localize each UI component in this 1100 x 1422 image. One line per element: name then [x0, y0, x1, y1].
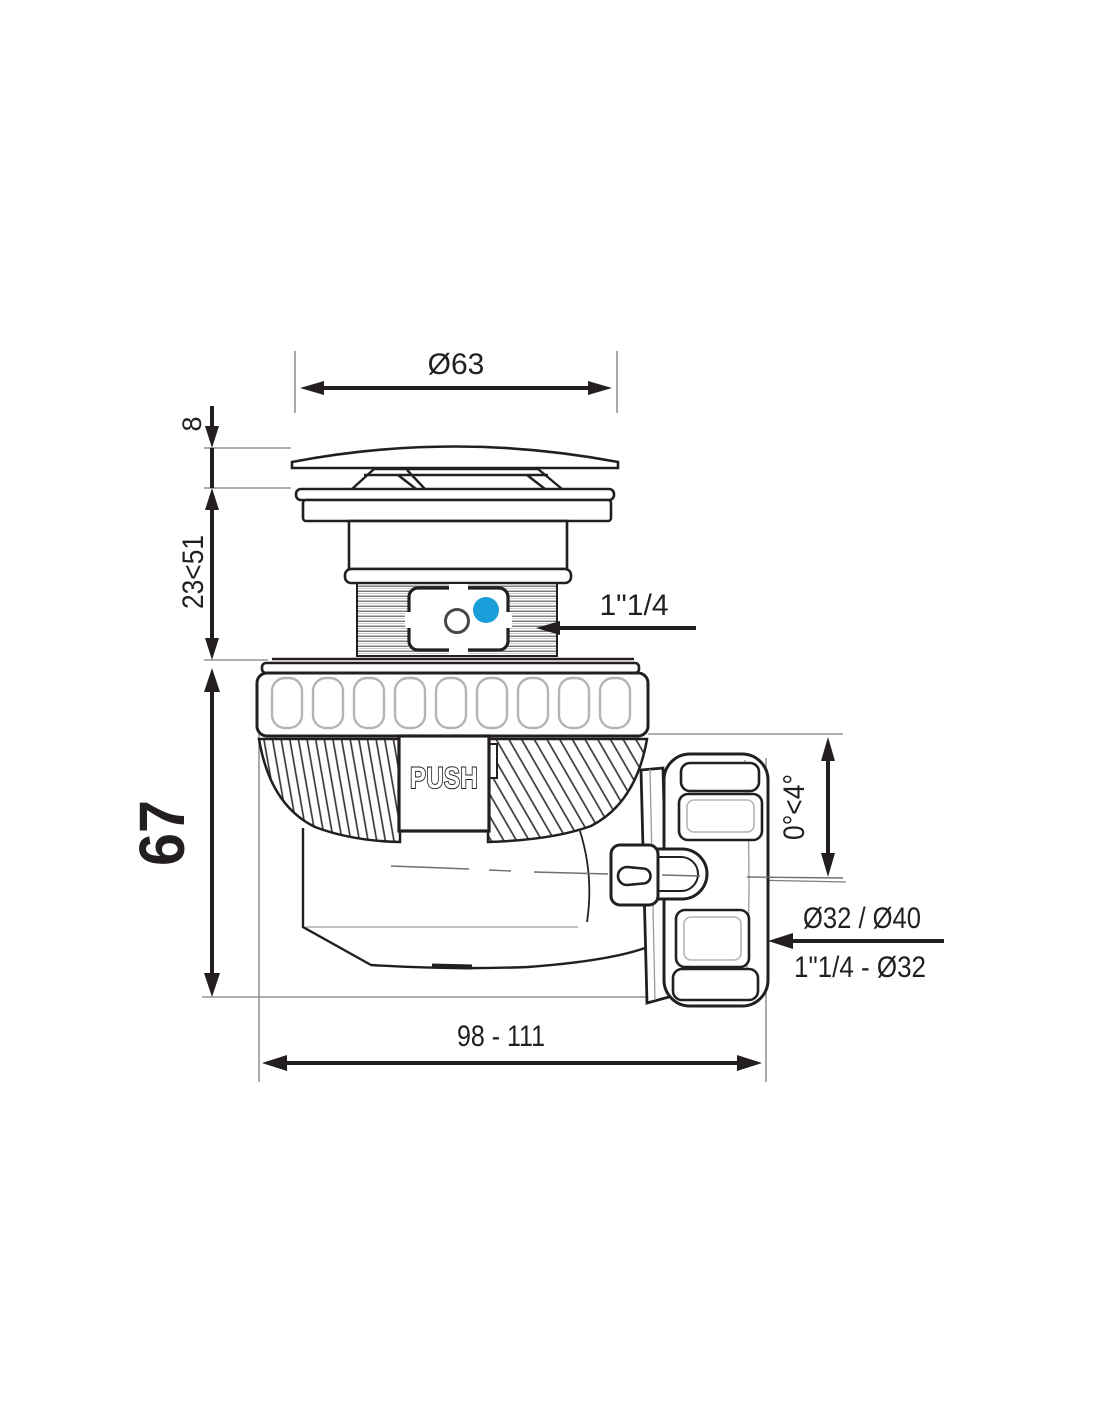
dim-cap-height: 8	[177, 406, 219, 488]
cap-flange-rim	[296, 489, 614, 500]
dim-outlet-line2-label: 1"1/4 - Ø32	[794, 951, 926, 984]
indicator-tag	[405, 584, 512, 654]
nut-grip-slot	[681, 763, 759, 791]
dim-overall-length: 98 - 111	[262, 1020, 762, 1071]
locking-ring-nut	[257, 659, 648, 736]
nut-grip-slot	[673, 969, 758, 1000]
dim-inlet-thread: 1"1/4	[536, 589, 696, 635]
dim-outlet-sizes: Ø32 / Ø40 1"1/4 - Ø32	[768, 902, 944, 984]
dim-adjust-range: 23<51	[177, 488, 219, 660]
dim-trap-height: 67	[126, 668, 220, 997]
tag-notch-left	[405, 612, 413, 628]
dim-inlet-thread-label: 1"1/4	[599, 589, 668, 622]
white-indicator-dot-icon	[446, 610, 469, 633]
blue-indicator-dot-icon	[473, 597, 499, 623]
dim-adjust-range-label: 23<51	[177, 535, 210, 609]
tag-notch-top	[449, 584, 468, 592]
cap-flange-body	[303, 500, 611, 521]
riser-body	[345, 521, 571, 656]
push-cap	[292, 447, 618, 522]
dim-overall-length-label: 98 - 111	[457, 1020, 545, 1053]
drain-plug-mark	[432, 966, 472, 967]
dim-tilt-range-label: 0°<4°	[778, 774, 811, 840]
dim-outlet-line1-label: Ø32 / Ø40	[803, 902, 921, 935]
handle-loop	[656, 849, 707, 899]
push-button-label: PUSH	[410, 762, 478, 795]
technical-drawing-page: Ø63	[0, 0, 1100, 1422]
push-button: PUSH	[399, 736, 497, 831]
dim-cap-diameter: Ø63	[300, 348, 612, 395]
tag-notch-bottom	[449, 646, 468, 654]
cap-underside-support	[352, 469, 562, 489]
dim-tilt-range: 0°<4°	[778, 737, 835, 877]
dim-cap-height-label: 8	[177, 416, 207, 431]
dim-cap-diameter-label: Ø63	[428, 348, 485, 381]
dim-trap-height-label: 67	[126, 800, 198, 866]
tag-notch-right	[504, 612, 512, 628]
keyhole-icon	[618, 867, 651, 885]
drain-trap-technical-drawing: Ø63	[0, 0, 1100, 1422]
keyhole-tab	[611, 845, 658, 905]
